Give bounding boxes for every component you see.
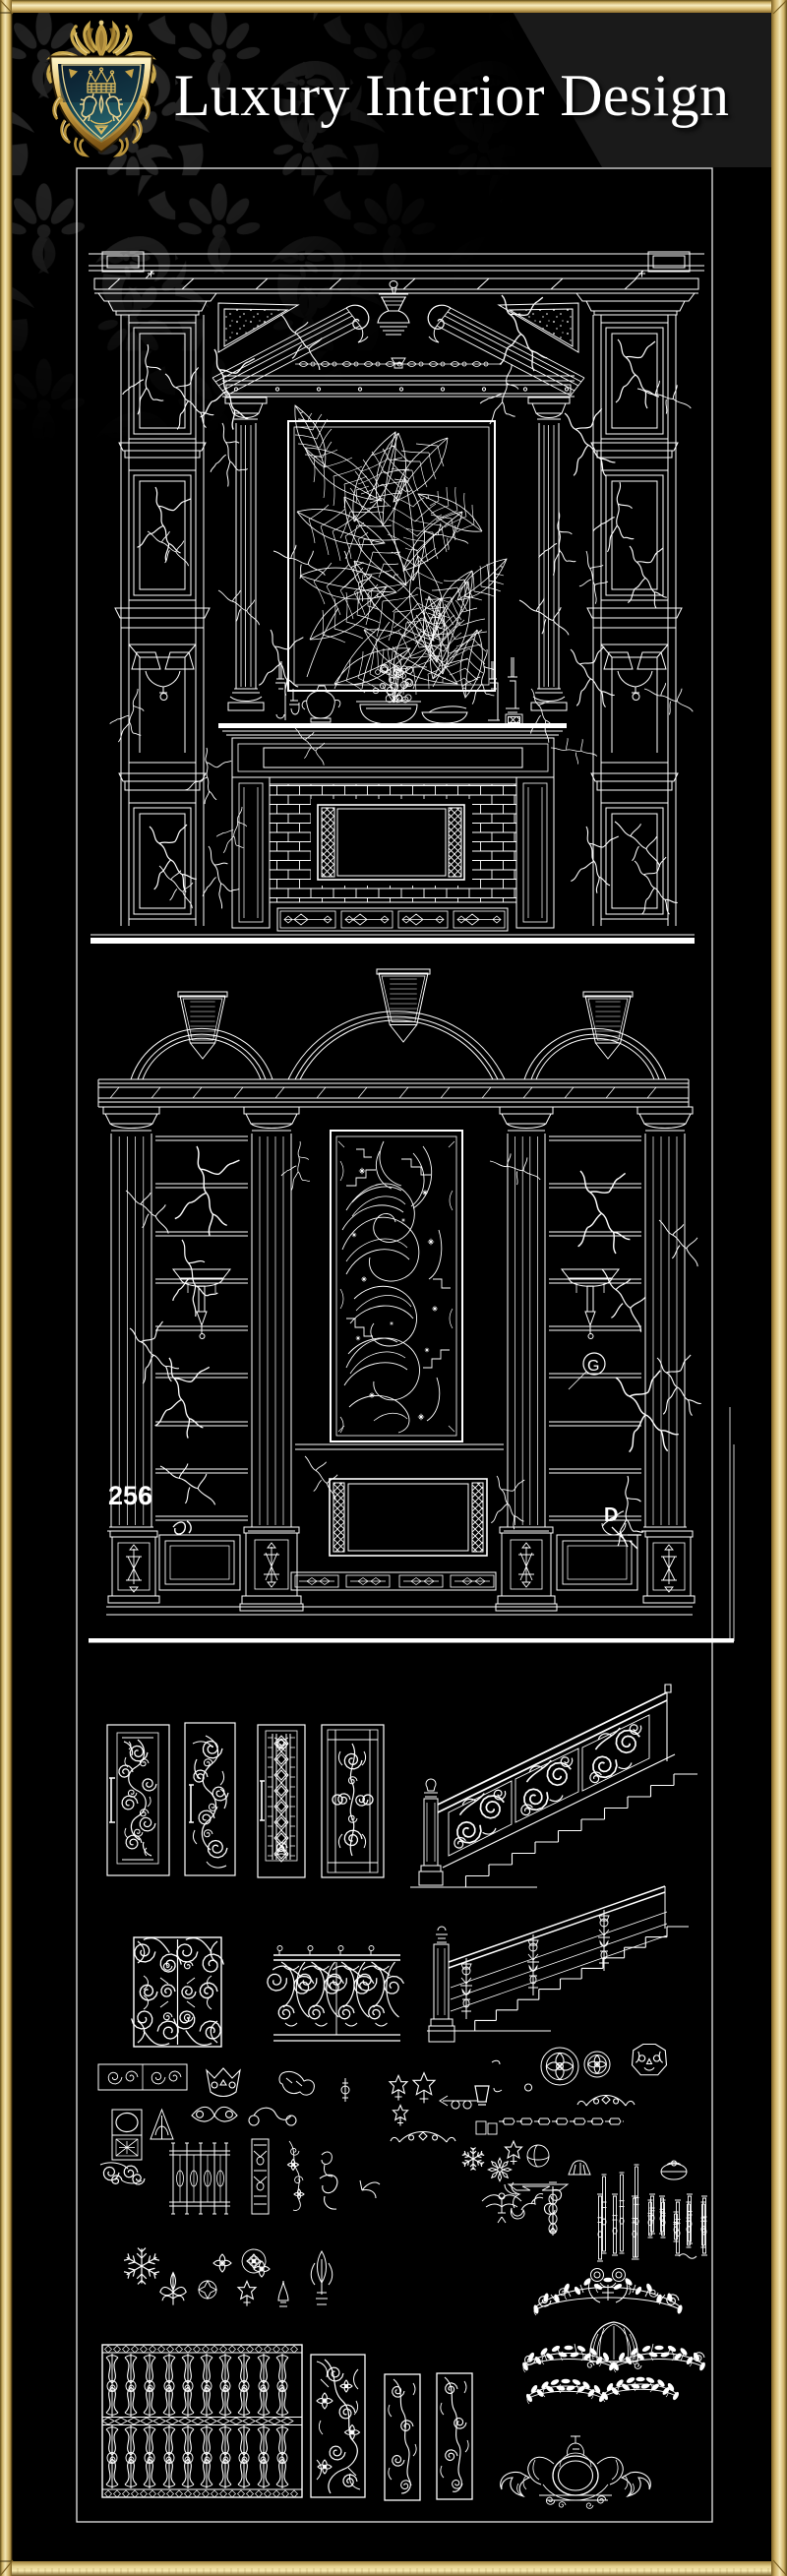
svg-text:Luxury Interior Design: Luxury Interior Design — [174, 63, 729, 128]
svg-text:256: 256 — [108, 1481, 152, 1510]
svg-text:G: G — [587, 1358, 599, 1375]
svg-text:D: D — [604, 1504, 618, 1526]
